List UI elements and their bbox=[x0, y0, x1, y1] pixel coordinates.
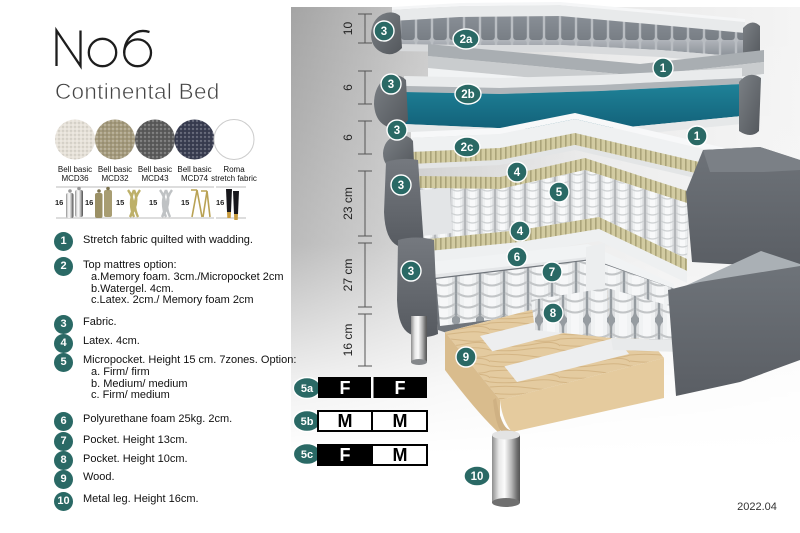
svg-text:15: 15 bbox=[149, 198, 157, 207]
svg-text:16: 16 bbox=[216, 198, 224, 207]
svg-text:15: 15 bbox=[181, 198, 189, 207]
svg-text:15: 15 bbox=[116, 198, 124, 207]
svg-text:10: 10 bbox=[341, 22, 355, 36]
svg-text:5a: 5a bbox=[301, 383, 314, 395]
svg-text:M: M bbox=[338, 411, 353, 431]
svg-text:3: 3 bbox=[398, 180, 404, 192]
svg-text:23 cm: 23 cm bbox=[341, 187, 355, 220]
svg-text:10: 10 bbox=[471, 471, 484, 483]
svg-text:3: 3 bbox=[408, 266, 414, 278]
svg-text:16: 16 bbox=[85, 198, 93, 207]
svg-text:F: F bbox=[395, 378, 406, 398]
svg-text:Bell basic: Bell basic bbox=[58, 165, 92, 174]
svg-text:5: 5 bbox=[556, 187, 563, 199]
svg-text:Roma: Roma bbox=[223, 165, 245, 174]
svg-text:MCD43: MCD43 bbox=[141, 174, 169, 183]
svg-text:4: 4 bbox=[517, 226, 524, 238]
svg-text:9: 9 bbox=[463, 352, 469, 364]
svg-text:5b: 5b bbox=[301, 416, 314, 428]
svg-text:1: 1 bbox=[660, 63, 667, 75]
svg-text:6: 6 bbox=[341, 134, 355, 141]
svg-text:3: 3 bbox=[388, 79, 394, 91]
svg-text:7: 7 bbox=[549, 267, 555, 279]
svg-text:3: 3 bbox=[381, 26, 387, 38]
svg-text:5c: 5c bbox=[301, 449, 313, 461]
svg-text:16: 16 bbox=[55, 198, 63, 207]
svg-text:Bell basic: Bell basic bbox=[138, 165, 172, 174]
svg-text:2022.04: 2022.04 bbox=[737, 501, 777, 513]
svg-text:27 cm: 27 cm bbox=[341, 259, 355, 292]
svg-text:Bell basic: Bell basic bbox=[177, 165, 211, 174]
svg-text:MCD74: MCD74 bbox=[181, 174, 209, 183]
svg-text:MCD32: MCD32 bbox=[101, 174, 129, 183]
svg-text:6: 6 bbox=[341, 84, 355, 91]
svg-text:MCD36: MCD36 bbox=[61, 174, 89, 183]
svg-text:F: F bbox=[340, 445, 351, 465]
svg-text:F: F bbox=[340, 378, 351, 398]
svg-text:1: 1 bbox=[694, 131, 701, 143]
svg-text:M: M bbox=[393, 445, 408, 465]
svg-text:Bell basic: Bell basic bbox=[98, 165, 132, 174]
svg-text:16 cm: 16 cm bbox=[341, 324, 355, 357]
svg-text:3: 3 bbox=[394, 125, 400, 137]
svg-text:8: 8 bbox=[550, 308, 557, 320]
svg-text:stretch fabric: stretch fabric bbox=[211, 174, 257, 183]
svg-text:2b: 2b bbox=[461, 89, 474, 101]
svg-text:4: 4 bbox=[514, 167, 521, 179]
svg-text:2a: 2a bbox=[460, 34, 473, 46]
svg-text:M: M bbox=[393, 411, 408, 431]
svg-text:2c: 2c bbox=[461, 142, 474, 154]
svg-text:6: 6 bbox=[514, 252, 520, 264]
